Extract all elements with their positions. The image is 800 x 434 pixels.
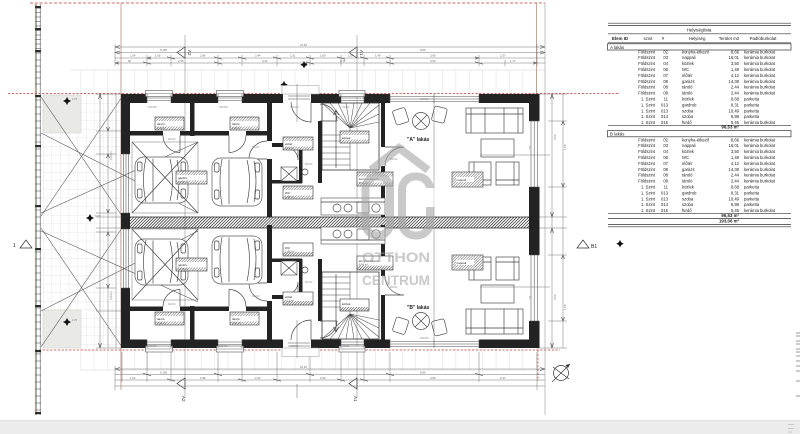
svg-text:4,12: 4,12 [731, 73, 740, 78]
svg-text:8,68: 8,68 [731, 97, 740, 102]
svg-text:96,53 m²: 96,53 m² [721, 213, 739, 218]
svg-text:közlek: közlek [682, 149, 695, 154]
svg-text:Földszint: Földszint [638, 91, 656, 96]
svg-text:3,50: 3,50 [731, 61, 740, 66]
svg-text:nappali: nappali [457, 261, 467, 265]
svg-text:8,66: 8,66 [731, 49, 740, 54]
svg-text:96,53 m²: 96,53 m² [721, 125, 739, 130]
svg-text:16,81: 16,81 [300, 365, 307, 369]
svg-text:Földszint: Földszint [638, 149, 656, 154]
svg-text:013: 013 [661, 190, 669, 195]
svg-text:tároló: tároló [232, 122, 240, 126]
svg-text:kerámia burkolat: kerámia burkolat [744, 167, 776, 172]
svg-text:kerámia burkolat: kerámia burkolat [744, 73, 776, 78]
svg-text:14,38 m²: 14,38 m² [178, 180, 188, 184]
svg-text:014: 014 [661, 114, 669, 119]
svg-text:9,80: 9,80 [420, 370, 426, 374]
svg-text:2,44: 2,44 [731, 85, 740, 90]
svg-text:1. Szint: 1. Szint [641, 196, 656, 201]
svg-text:4,76: 4,76 [72, 97, 78, 101]
svg-text:3,54: 3,54 [553, 134, 557, 140]
svg-text:OTTHON: OTTHON [362, 250, 430, 265]
svg-text:14,38: 14,38 [729, 167, 740, 172]
svg-text:tároló: tároló [682, 173, 693, 178]
svg-text:WC: WC [285, 246, 291, 250]
svg-text:75/150: 75/150 [342, 345, 350, 348]
svg-text:kerámia burkolat: kerámia burkolat [744, 137, 776, 142]
svg-text:02: 02 [663, 49, 668, 54]
svg-text:8,98: 8,98 [731, 114, 740, 119]
svg-text:4,12 m²: 4,12 m² [285, 146, 294, 150]
svg-text:A lakás: A lakás [610, 45, 625, 50]
svg-text:WC: WC [682, 67, 689, 72]
svg-text:parketta: parketta [744, 108, 760, 113]
svg-text:150: 150 [529, 145, 532, 150]
svg-text:1,50: 1,50 [563, 304, 567, 310]
svg-text:tároló: tároló [157, 317, 165, 321]
svg-text:Elem ID: Elem ID [612, 36, 628, 41]
svg-text:1. Szint: 1. Szint [641, 114, 656, 119]
svg-text:kerámia burkolat: kerámia burkolat [744, 149, 776, 154]
svg-text:60/210: 60/210 [305, 281, 313, 284]
svg-text:2,44: 2,44 [255, 376, 261, 380]
svg-text:kerámia burkolat: kerámia burkolat [744, 61, 776, 66]
svg-text:150/150: 150/150 [219, 106, 228, 109]
svg-text:tároló: tároló [682, 179, 693, 184]
svg-text:240/213: 240/213 [110, 151, 113, 160]
svg-text:Földszint: Földszint [638, 137, 656, 142]
svg-text:közlek: közlek [342, 302, 351, 306]
svg-text:8,66: 8,66 [731, 137, 740, 142]
svg-text:kerámia burkolat: kerámia burkolat [744, 120, 776, 125]
svg-text:1,80: 1,80 [320, 376, 326, 380]
svg-text:garázs: garázs [682, 167, 695, 172]
svg-text:WC: WC [285, 191, 291, 195]
svg-text:Földszint: Földszint [638, 73, 656, 78]
svg-text:1,48: 1,48 [731, 155, 740, 160]
svg-text:08: 08 [663, 167, 668, 172]
svg-text:előtér: előtér [285, 142, 293, 146]
svg-text:B lakás: B lakás [610, 132, 625, 137]
svg-text:16,01: 16,01 [729, 143, 740, 148]
svg-text:kerámia burkolat: kerámia burkolat [744, 49, 776, 54]
svg-text:07: 07 [663, 73, 668, 78]
svg-text:5,165: 5,165 [160, 48, 167, 52]
svg-text:1. Szint: 1. Szint [641, 97, 656, 102]
svg-text:parketta: parketta [744, 102, 760, 107]
svg-text:1,48: 1,48 [731, 67, 740, 72]
svg-text:1. Szint: 1. Szint [641, 108, 656, 113]
svg-text:A2: A2 [187, 50, 192, 56]
svg-text:kerámia burkolat: kerámia burkolat [744, 161, 776, 166]
svg-text:2,44: 2,44 [255, 54, 261, 58]
svg-text:08: 08 [663, 79, 668, 84]
svg-text:10,49: 10,49 [729, 108, 740, 113]
svg-text:08: 08 [663, 179, 668, 184]
svg-text:2,37: 2,37 [500, 54, 506, 58]
svg-text:2,44: 2,44 [731, 91, 740, 96]
svg-text:"A" lakás: "A" lakás [407, 137, 429, 143]
svg-text:013: 013 [661, 196, 669, 201]
svg-text:90: 90 [128, 59, 132, 63]
svg-text:parketta: parketta [744, 196, 760, 201]
svg-text:kerámia burkolat: kerámia burkolat [744, 85, 776, 90]
svg-text:Helyiséglista: Helyiséglista [687, 28, 712, 33]
svg-text:parketta: parketta [744, 185, 760, 190]
svg-text:kerámia burkolat: kerámia burkolat [744, 79, 776, 84]
svg-text:1. Szint: 1. Szint [641, 190, 656, 195]
svg-text:1. Szint: 1. Szint [641, 102, 656, 107]
svg-text:Földszint: Földszint [638, 173, 656, 178]
svg-text:1,50: 1,50 [563, 144, 567, 150]
svg-text:3,80: 3,80 [430, 54, 436, 58]
svg-text:Földszint: Földszint [638, 155, 656, 160]
svg-text:garázs: garázs [682, 79, 695, 84]
svg-text:1,04: 1,04 [348, 54, 354, 58]
svg-text:szoba: szoba [682, 196, 694, 201]
svg-text:Földszint: Földszint [638, 161, 656, 166]
svg-text:4,12: 4,12 [731, 161, 740, 166]
svg-text:1,51: 1,51 [290, 54, 296, 58]
svg-text:Földszint: Földszint [638, 167, 656, 172]
svg-text:szoba: szoba [682, 114, 694, 119]
svg-text:4,76: 4,76 [72, 318, 78, 322]
svg-text:16,81: 16,81 [300, 43, 307, 47]
svg-text:Földszint: Földszint [638, 179, 656, 184]
svg-text:Helyiség: Helyiség [689, 36, 706, 41]
svg-text:08: 08 [663, 85, 668, 90]
svg-text:közlek: közlek [682, 185, 695, 190]
svg-text:gardrob: gardrob [682, 102, 697, 107]
svg-text:2,44 m²: 2,44 m² [232, 321, 241, 325]
svg-text:2,44: 2,44 [731, 179, 740, 184]
svg-text:015: 015 [661, 120, 669, 125]
svg-text:1,04: 1,04 [130, 376, 136, 380]
svg-text:2,44 m²: 2,44 m² [232, 126, 241, 130]
svg-text:nappali: nappali [682, 55, 696, 60]
svg-text:közlek: közlek [682, 61, 695, 66]
svg-text:tároló: tároló [682, 91, 693, 96]
svg-text:015: 015 [661, 208, 669, 213]
svg-text:2,35: 2,35 [178, 59, 184, 63]
svg-text:2,44 m²: 2,44 m² [157, 126, 166, 130]
svg-text:013: 013 [661, 108, 669, 113]
svg-text:150/150: 150/150 [219, 345, 228, 348]
svg-text:1,80: 1,80 [320, 54, 326, 58]
svg-text:A1: A1 [353, 396, 358, 402]
svg-text:4,12 m²: 4,12 m² [285, 299, 294, 303]
svg-text:2,44 m²: 2,44 m² [157, 321, 166, 325]
svg-text:szoba: szoba [682, 202, 694, 207]
svg-text:07: 07 [663, 161, 668, 166]
svg-text:1,49: 1,49 [375, 54, 381, 58]
svg-text:1. Szint: 1. Szint [641, 202, 656, 207]
svg-text:16,01: 16,01 [729, 55, 740, 60]
svg-text:kerámia burkolat: kerámia burkolat [744, 67, 776, 72]
svg-text:390/220: 390/220 [420, 337, 429, 340]
svg-text:1,77: 1,77 [510, 59, 516, 63]
svg-text:garázs: garázs [178, 263, 188, 267]
svg-text:"B" lakás: "B" lakás [407, 305, 429, 311]
svg-text:kerámia burkolat: kerámia burkolat [744, 179, 776, 184]
svg-text:06: 06 [663, 155, 668, 160]
svg-text:konyha-étkező: konyha-étkező [682, 49, 710, 54]
svg-text:1,48 m²: 1,48 m² [285, 195, 294, 199]
svg-text:90/210: 90/210 [252, 146, 260, 149]
svg-text:04: 04 [663, 61, 668, 66]
svg-text:193,06 m²: 193,06 m² [719, 219, 740, 224]
svg-text:75/150: 75/150 [342, 106, 350, 109]
svg-text:Földszint: Földszint [638, 85, 656, 90]
svg-text:2,25: 2,25 [340, 59, 346, 63]
svg-text:tároló: tároló [157, 122, 165, 126]
svg-text:1. Szint: 1. Szint [641, 185, 656, 190]
svg-text:tároló: tároló [232, 317, 240, 321]
svg-text:szint: szint [643, 36, 653, 41]
svg-text:9,80: 9,80 [420, 48, 426, 52]
svg-text:08: 08 [663, 91, 668, 96]
svg-text:parketta: parketta [744, 114, 760, 119]
svg-text:parketta: parketta [744, 97, 760, 102]
svg-text:Földszint: Földszint [638, 67, 656, 72]
svg-text:8,98: 8,98 [731, 202, 740, 207]
svg-text:11: 11 [664, 185, 669, 190]
svg-text:fürdő: fürdő [682, 120, 692, 125]
svg-text:2,37: 2,37 [500, 376, 506, 380]
svg-text:90/210: 90/210 [168, 303, 176, 306]
svg-text:3,80: 3,80 [430, 376, 436, 380]
svg-text:8,68: 8,68 [731, 185, 740, 190]
svg-text:390/220: 390/220 [420, 98, 429, 101]
svg-text:fürdő: fürdő [682, 208, 692, 213]
svg-text:014: 014 [661, 202, 669, 207]
svg-text:90/210: 90/210 [168, 138, 176, 141]
svg-text:10,49: 10,49 [729, 196, 740, 201]
svg-text:parketta: parketta [744, 190, 760, 195]
svg-text:14,38: 14,38 [729, 79, 740, 84]
svg-text:8,31: 8,31 [731, 102, 740, 107]
svg-text:nappali: nappali [457, 178, 467, 182]
svg-text:1. Szint: 1. Szint [641, 120, 656, 125]
svg-text:06: 06 [663, 67, 668, 72]
svg-text:14,38 m²: 14,38 m² [178, 267, 188, 271]
svg-text:1: 1 [13, 243, 16, 249]
svg-text:A2: A2 [181, 396, 186, 402]
svg-text:04: 04 [663, 149, 668, 154]
svg-text:gardrob: gardrob [682, 190, 697, 195]
svg-text:013: 013 [661, 102, 669, 107]
svg-text:3,60: 3,60 [430, 59, 436, 63]
svg-text:100/210: 100/210 [290, 106, 299, 109]
svg-text:2,98: 2,98 [200, 54, 206, 58]
svg-text:2,44: 2,44 [731, 173, 740, 178]
svg-text:Földszint: Földszint [638, 49, 656, 54]
svg-text:03: 03 [663, 55, 668, 60]
svg-text:1,04: 1,04 [130, 54, 136, 58]
svg-text:150/150: 150/150 [148, 106, 157, 109]
svg-text:60/210: 60/210 [305, 163, 313, 166]
svg-text:előtér: előtér [682, 73, 693, 78]
svg-text:közlek: közlek [682, 97, 695, 102]
svg-text:garázs: garázs [178, 176, 188, 180]
svg-text:szoba: szoba [682, 108, 694, 113]
svg-text:nappali: nappali [682, 143, 696, 148]
svg-text:kerámia burkolat: kerámia burkolat [744, 91, 776, 96]
svg-text:8,31: 8,31 [731, 190, 740, 195]
svg-text:3,54: 3,54 [553, 294, 557, 300]
svg-text:02: 02 [663, 137, 668, 142]
svg-text:Terület m2: Terület m2 [719, 36, 740, 41]
svg-text:előtér: előtér [285, 295, 293, 299]
svg-text:3,42: 3,42 [262, 59, 268, 63]
svg-text:A1: A1 [359, 50, 364, 56]
svg-text:08: 08 [663, 173, 668, 178]
svg-text:B1: B1 [591, 244, 597, 250]
svg-text:CENTRUM: CENTRUM [362, 273, 430, 288]
svg-text:parketta: parketta [744, 202, 760, 207]
svg-text:Földszint: Földszint [638, 61, 656, 66]
svg-text:240/213: 240/213 [110, 291, 113, 300]
svg-text:konyha-étkező: konyha-étkező [682, 137, 710, 142]
svg-text:kerámia burkolat: kerámia burkolat [744, 155, 776, 160]
svg-text:Földszint: Földszint [638, 143, 656, 148]
svg-text:tároló: tároló [682, 85, 693, 90]
svg-text:150: 150 [529, 295, 532, 300]
svg-text:03: 03 [663, 143, 668, 148]
svg-text:kerámia burkolat: kerámia burkolat [744, 143, 776, 148]
svg-text:1,65: 1,65 [155, 54, 161, 58]
svg-text:3,50: 3,50 [731, 149, 740, 154]
svg-text:kerámia burkolat: kerámia burkolat [744, 208, 776, 213]
svg-text:kerámia burkolat: kerámia burkolat [744, 55, 776, 60]
svg-text:100/210: 100/210 [290, 345, 299, 348]
svg-text:kerámia burkolat: kerámia burkolat [744, 173, 776, 178]
svg-text:2,98: 2,98 [200, 376, 206, 380]
svg-text:90/210: 90/210 [252, 295, 260, 298]
svg-text:Földszint: Földszint [638, 55, 656, 60]
svg-text:Földszint: Földszint [638, 79, 656, 84]
svg-text:1,48 m²: 1,48 m² [285, 250, 294, 254]
svg-text:Padlóburkolat: Padlóburkolat [750, 36, 778, 41]
svg-text:11: 11 [664, 97, 669, 102]
svg-text:5,165: 5,165 [160, 370, 167, 374]
svg-text:WC: WC [682, 155, 689, 160]
svg-text:közlek: közlek [342, 136, 351, 140]
svg-text:1. Szint: 1. Szint [641, 208, 656, 213]
svg-text:előtér: előtér [682, 161, 693, 166]
svg-text:150/150: 150/150 [148, 345, 157, 348]
